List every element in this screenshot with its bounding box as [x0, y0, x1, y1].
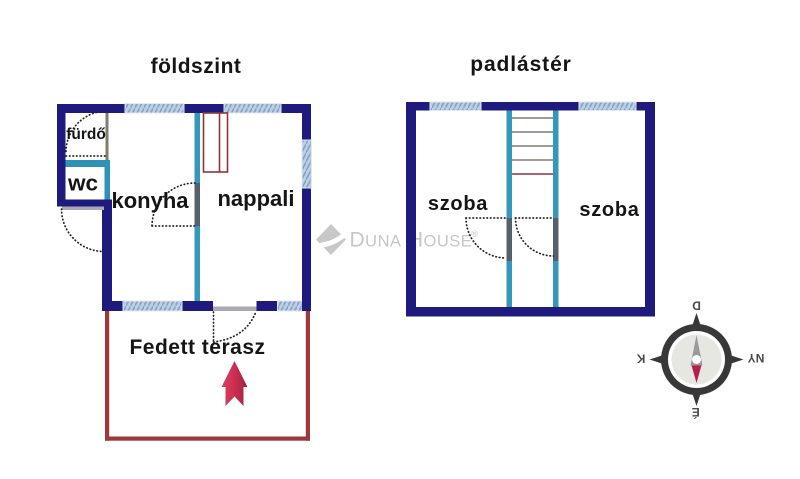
svg-text:konyha: konyha: [111, 188, 189, 213]
svg-text:wc: wc: [67, 171, 98, 196]
svg-text:földszint: földszint: [151, 55, 242, 78]
svg-text:padlástér: padlástér: [470, 53, 571, 76]
svg-text:Fedett terasz: Fedett terasz: [129, 336, 265, 359]
svg-text:D: D: [692, 298, 701, 312]
svg-text:szoba: szoba: [428, 193, 488, 215]
svg-text:É: É: [692, 405, 700, 420]
svg-text:NY: NY: [748, 351, 765, 365]
svg-text:fürdő: fürdő: [66, 126, 106, 143]
svg-text:szoba: szoba: [579, 199, 639, 221]
svg-text:K: K: [636, 352, 645, 366]
svg-text:nappali: nappali: [217, 186, 294, 211]
